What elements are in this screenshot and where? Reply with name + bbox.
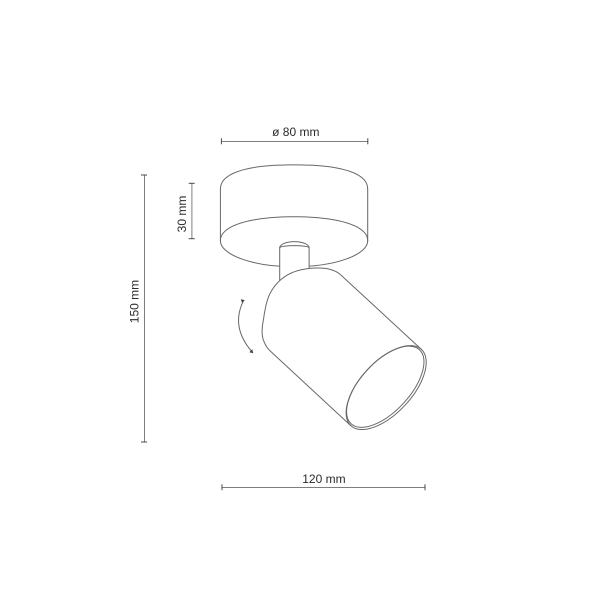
svg-text:120 mm: 120 mm bbox=[302, 472, 345, 486]
svg-text:150 mm: 150 mm bbox=[128, 280, 142, 323]
svg-text:ø 80 mm: ø 80 mm bbox=[272, 125, 319, 139]
svg-text:30 mm: 30 mm bbox=[175, 196, 189, 233]
